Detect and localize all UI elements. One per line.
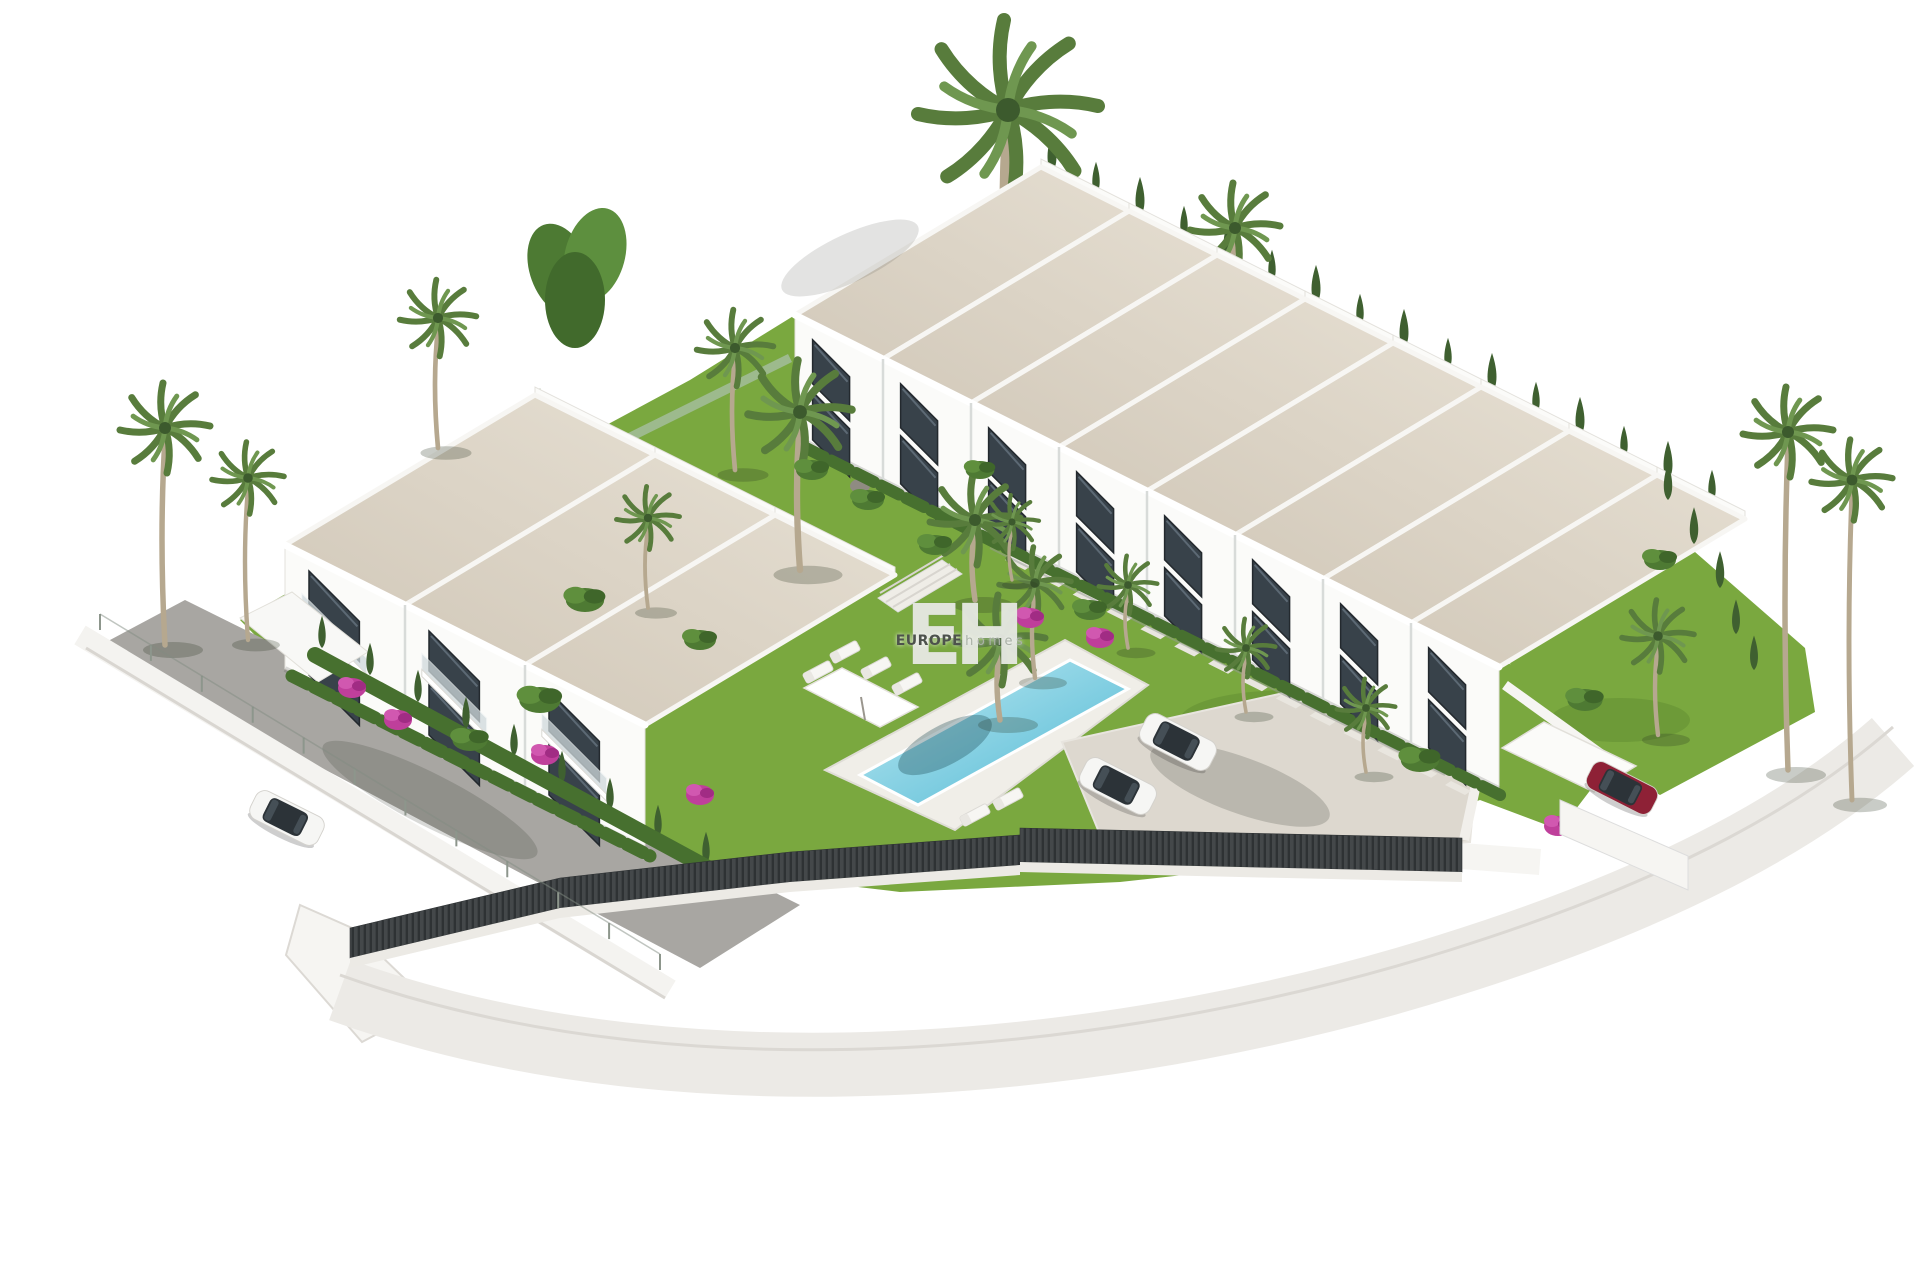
scene-svg (0, 0, 1920, 1280)
street-white-car (244, 787, 328, 854)
banana-plant (545, 252, 605, 348)
render-canvas: EH EUROPEhomes (0, 0, 1920, 1280)
right-boundary-cypress (1716, 551, 1724, 588)
